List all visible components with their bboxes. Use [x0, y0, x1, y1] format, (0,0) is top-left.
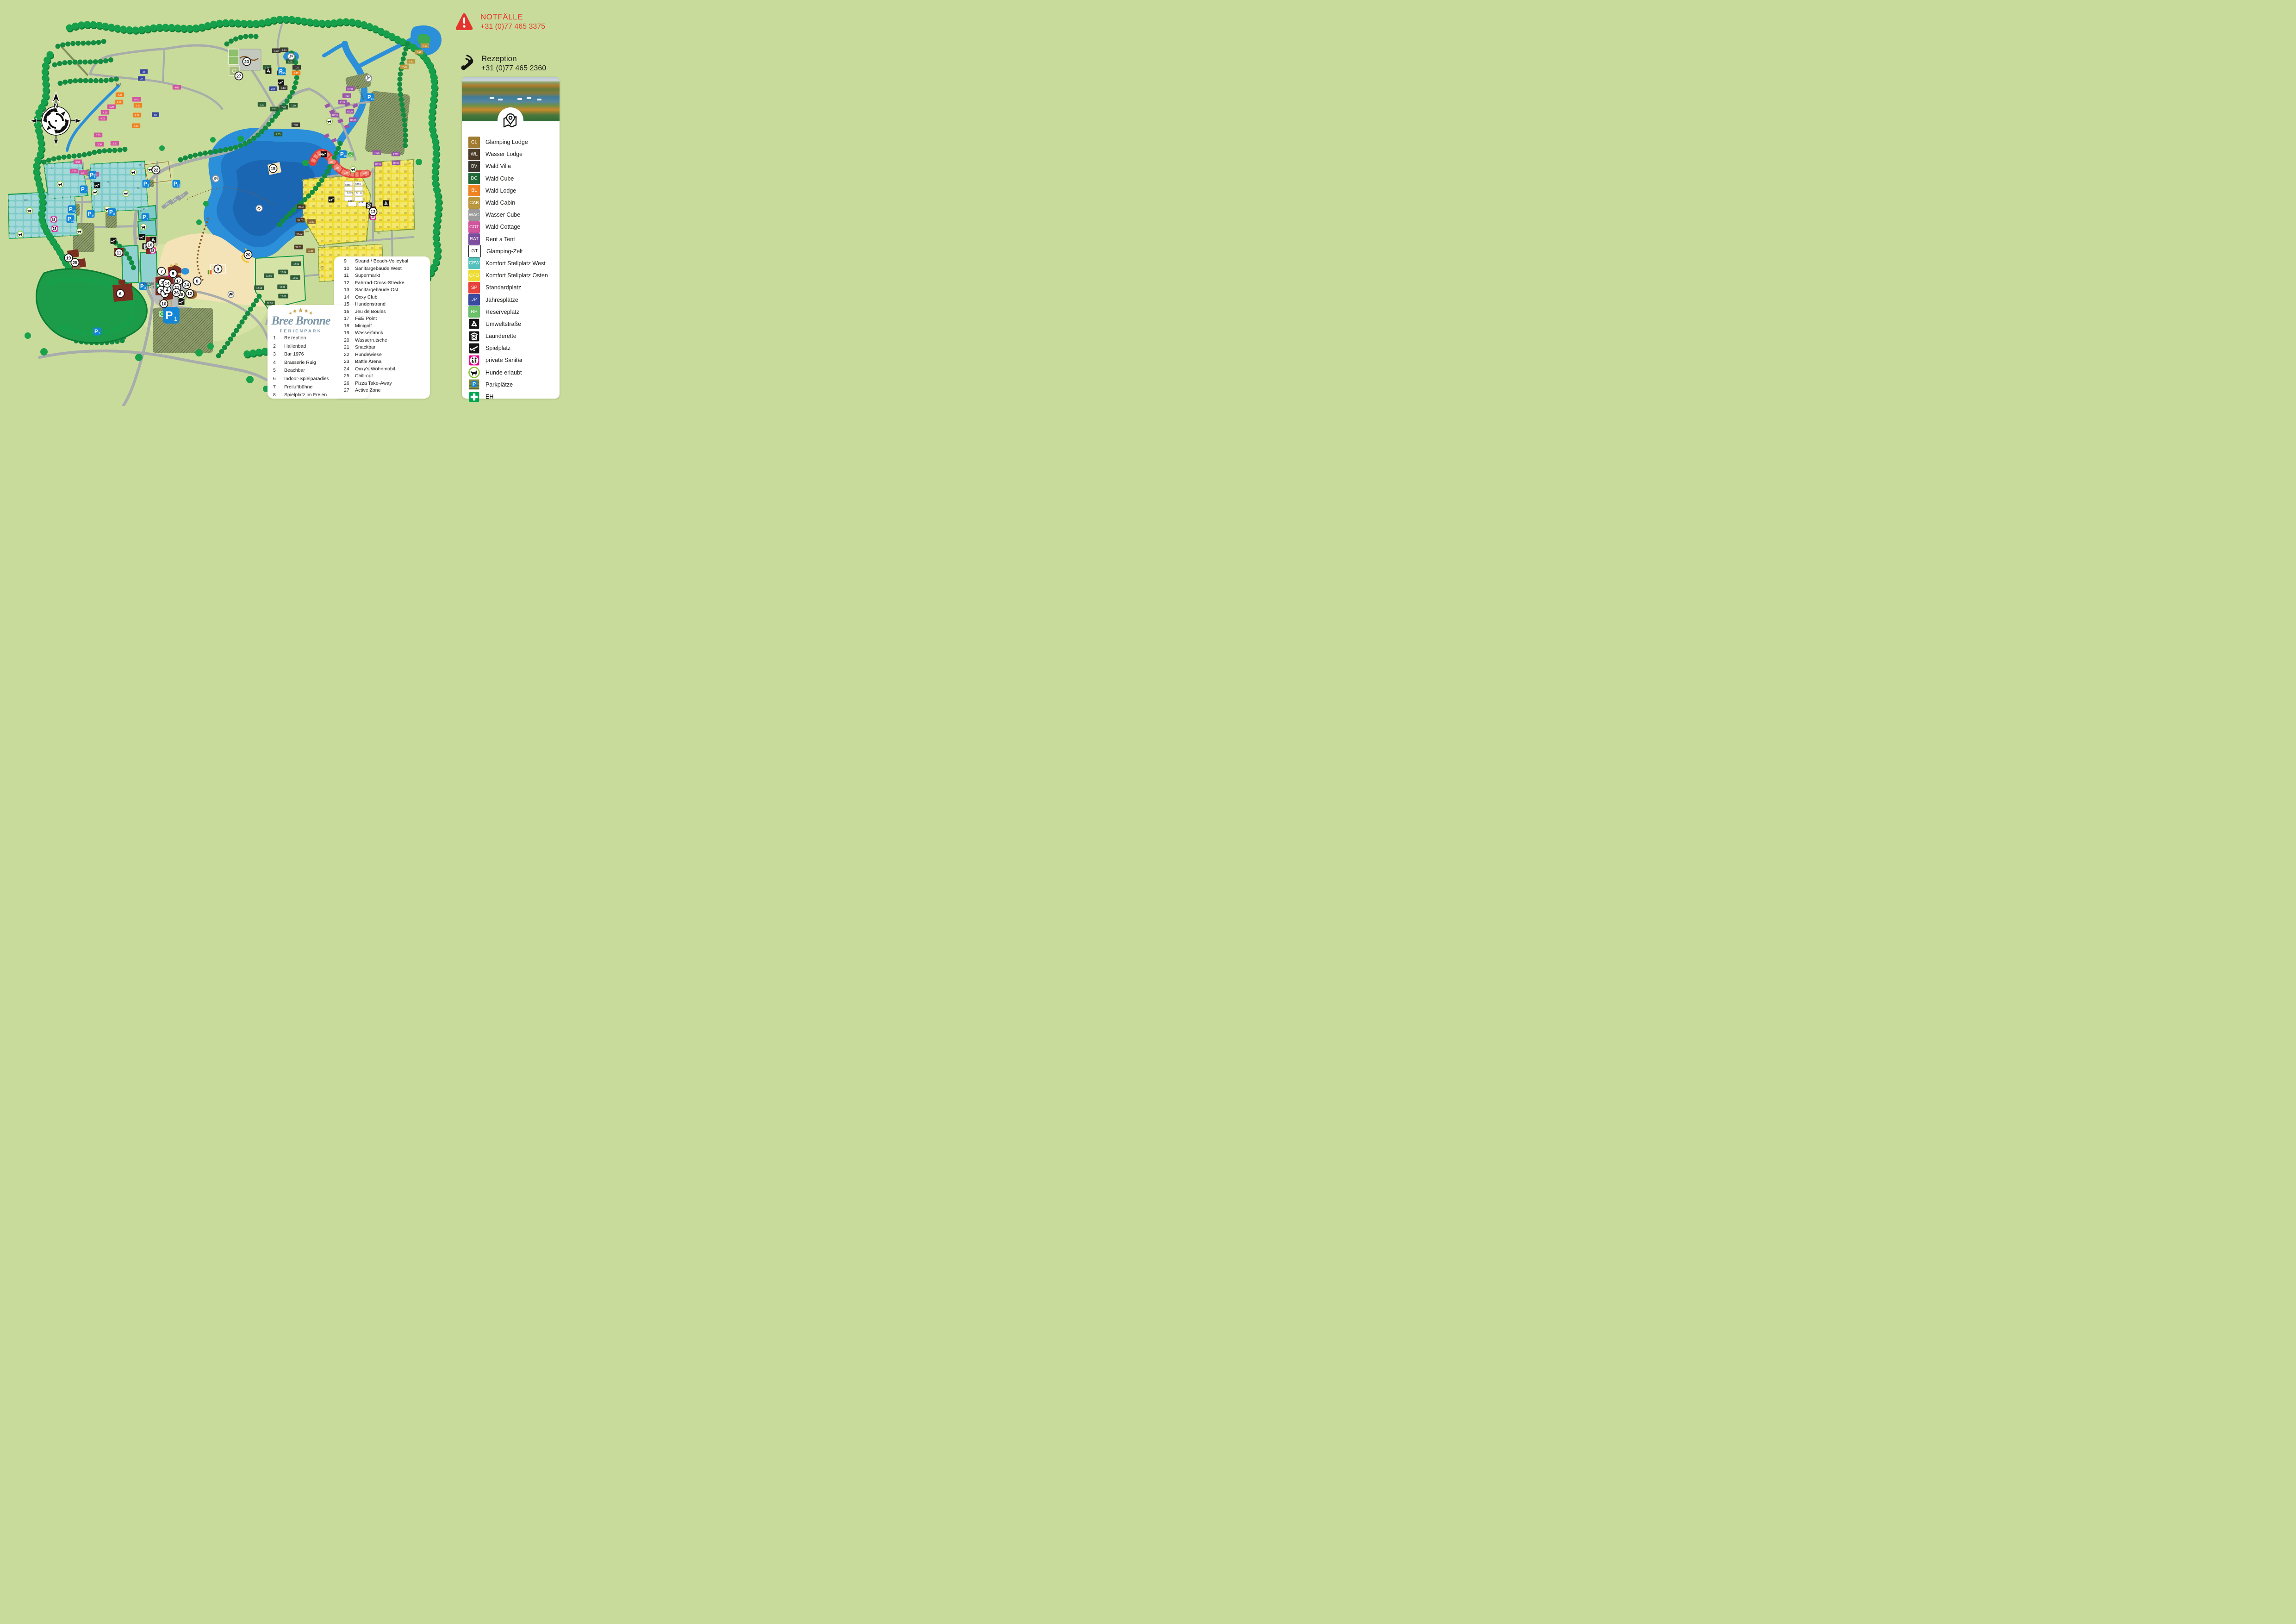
legend-label: Wasser Cube — [485, 212, 520, 218]
map-label-GL02: GL02 — [309, 221, 314, 224]
legend-swatch: BL — [468, 185, 480, 196]
legend-swatch: CAB — [468, 197, 480, 209]
map-label-7.40: 7.40 — [423, 45, 427, 48]
legend-card: GLGlamping LodgeWLWasser LodgeBVWald Vil… — [462, 77, 560, 399]
map-label-WL04: WL04 — [298, 206, 304, 209]
svg-text:4: 4 — [166, 287, 168, 293]
park-logo: ★★★★★ Bree Bronne FERIENPARK — [268, 306, 334, 334]
map-label-GT08: GT08 — [345, 184, 351, 187]
map-marker-10[interactable]: 10 — [146, 241, 154, 249]
map-marker-14[interactable]: 14 — [163, 279, 171, 287]
legend-swatch: COT — [468, 221, 480, 233]
map-pin-icon — [498, 107, 523, 133]
facility-number: 10 — [344, 266, 352, 271]
map-label-12.04: 12.04 — [280, 271, 286, 274]
facility-number: 17 — [344, 316, 352, 321]
legend-label: Parkplätze — [485, 381, 513, 388]
map-label-12.12: 12.12 — [256, 287, 262, 290]
map-label-7.43: 7.43 — [402, 66, 407, 69]
facility-number: 8 — [273, 392, 281, 398]
svg-text:25: 25 — [73, 260, 78, 265]
map-label-7.42: 7.42 — [409, 61, 413, 63]
dog-icon — [468, 367, 480, 378]
map-label-137: 137 — [11, 233, 15, 236]
parking-icon — [468, 379, 480, 390]
map-label-3.56: 3.56 — [72, 170, 76, 173]
legend-item-cpw: CPWKomfort Stellplatz West — [468, 257, 557, 269]
eh-icon — [468, 391, 480, 403]
map-label-RT20: RT20 — [347, 111, 353, 113]
map-label-GT11: GT11 — [356, 192, 362, 194]
map-label-RT08: RT08 — [348, 88, 353, 91]
park-map-page: P — [0, 0, 574, 406]
legend-label: Reserveplatz — [485, 309, 519, 315]
map-label-7.10: 7.10 — [291, 105, 296, 107]
map-label-7.05: 7.05 — [276, 133, 280, 136]
facility-number: 25 — [344, 373, 352, 379]
map-label-281: 281 — [407, 162, 411, 165]
map-label-59: 59 — [154, 114, 157, 117]
legend-item-gt: GTGlamping-Zelt — [468, 245, 557, 257]
svg-text:14: 14 — [165, 281, 170, 286]
map-label-ENTREE: ENTREE — [143, 283, 154, 286]
parking-p8[interactable]: P8 — [108, 208, 116, 216]
facility-row-8: 8Spielplatz im Freien — [273, 392, 329, 400]
facility-label: Sanitärgebäude West — [355, 266, 402, 271]
facility-label: Bar 1976 — [284, 351, 304, 357]
recycle-icon — [383, 200, 389, 206]
flag-icon — [208, 270, 212, 275]
facility-label: Battle Arena — [355, 359, 381, 364]
map-label-53: 53 — [140, 210, 143, 212]
facility-label: Hundenstrand — [355, 301, 386, 307]
map-label-4.41: 4.41 — [134, 99, 139, 101]
map-label-4.08: 4.08 — [174, 87, 179, 89]
legend-item-parking: Parkplätze — [468, 379, 557, 391]
svg-text:16: 16 — [371, 98, 374, 101]
dog-icon — [130, 169, 136, 175]
legend-item-gl: GLGlamping Lodge — [468, 136, 557, 148]
facility-number: 18 — [344, 323, 352, 329]
legend-label: Hunde erlaubt — [485, 369, 522, 376]
reception-phone: +31 (0)77 465 2360 — [481, 64, 546, 74]
svg-text:11: 11 — [71, 220, 74, 223]
reception-contact: Rezeption +31 (0)77 465 2360 — [456, 54, 546, 74]
facility-label: Sanitärgebäude Ost — [355, 287, 398, 293]
legend-label: Glamping Lodge — [485, 139, 528, 145]
facility-row-4: 4Brasserie Ruig — [273, 360, 329, 368]
svg-text:P: P — [109, 210, 113, 215]
svg-text:P: P — [81, 187, 85, 193]
facility-label: Snackbar — [355, 344, 375, 350]
map-label-7.07: 7.07 — [293, 124, 298, 127]
facility-number: 7 — [273, 384, 281, 390]
legend-item-dog: Hunde erlaubt — [468, 367, 557, 379]
facility-number: 23 — [344, 359, 352, 364]
facility-row-14: 14Oxxy Club — [344, 294, 408, 302]
map-label-N: N — [54, 102, 58, 109]
seesaw-icon — [329, 197, 335, 203]
map-label-35: 35 — [143, 71, 145, 74]
facility-number: 3 — [273, 351, 281, 357]
map-label-188: 188 — [305, 231, 309, 233]
facility-number: 13 — [344, 287, 352, 293]
emergency-phone: +31 (0)77 465 3375 — [480, 22, 545, 32]
seesaw-icon — [468, 343, 480, 354]
legend-swatch: WAC — [468, 209, 480, 221]
map-label-3.30: 3.30 — [112, 143, 117, 145]
parking-p9[interactable]: P9 — [87, 210, 95, 218]
map-label-RT25: RT25 — [374, 152, 380, 155]
svg-text:10: 10 — [72, 210, 75, 213]
parking-p13[interactable]: P13 — [339, 150, 347, 158]
map-label-RT26: RT26 — [375, 163, 381, 166]
legend-item-cot: COTWald Cottage — [468, 221, 557, 233]
facility-label: Supermarkt — [355, 273, 380, 278]
facility-label: Hundewiese — [355, 352, 382, 357]
dog-icon — [326, 118, 332, 124]
facility-number: 19 — [344, 330, 352, 336]
facility-row-9: 9Strand / Beach-Volleybal — [344, 258, 408, 266]
nofish-icon — [288, 53, 294, 60]
map-marker-12[interactable]: 12 — [186, 289, 193, 297]
svg-text:20: 20 — [246, 252, 251, 257]
map-marker-24[interactable]: 24 — [182, 281, 190, 288]
legend-item-eh: EH — [468, 391, 557, 403]
map-label-7.02: 7.02 — [281, 106, 286, 109]
facility-row-18: 18Minigolf — [344, 323, 408, 331]
map-label-3.57: 3.57 — [81, 172, 86, 175]
reception-title: Rezeption — [481, 54, 546, 64]
svg-text:19: 19 — [66, 256, 71, 261]
warning-icon — [454, 12, 474, 31]
wc-icon — [51, 217, 57, 223]
map-label-12.01: 12.01 — [293, 263, 299, 266]
map-label-3.08: 3.08 — [93, 174, 97, 176]
nofish-icon — [212, 175, 219, 182]
facility-label: Minigolf — [355, 323, 372, 329]
parking-p5[interactable]: P5 — [143, 180, 150, 188]
facility-row-5: 5Beachbar — [273, 368, 329, 376]
facility-row-20: 20Wasserrutsche — [344, 337, 408, 345]
facility-row-10: 10Sanitärgebäude West — [344, 266, 408, 273]
emergency-title: NOTFÄLLE — [480, 12, 545, 22]
map-label-408: 408 — [330, 161, 334, 164]
legend-swatch: GT — [468, 245, 481, 257]
map-marker-27[interactable]: 27 — [235, 72, 243, 80]
map-label-63: 63 — [138, 164, 141, 166]
legend-item-rat: RATRent a Tent — [468, 233, 557, 245]
map-marker-11[interactable]: 11 — [115, 249, 123, 256]
legend-swatch: CPW — [468, 257, 480, 269]
map-label-7.22: 7.22 — [274, 50, 279, 53]
legend-item-wl: WLWasser Lodge — [468, 148, 557, 160]
map-label-GT09: GT09 — [355, 183, 361, 186]
map-label-7.25: 7.25 — [288, 61, 292, 63]
facility-number: 1 — [273, 335, 281, 341]
legend-swatch: WL — [468, 149, 480, 160]
dog-icon — [350, 166, 356, 172]
map-label-3.36: 3.36 — [97, 144, 102, 146]
map-label-411: 411 — [319, 153, 323, 156]
parking-p12[interactable]: P12 — [173, 180, 180, 188]
legend-item-rp: RPReserveplatz — [468, 306, 557, 318]
map-label-4.33: 4.33 — [118, 94, 122, 97]
dog-icon — [26, 207, 32, 213]
svg-text:23: 23 — [244, 59, 249, 64]
map-label-7.01: 7.01 — [272, 108, 277, 111]
parking-p7[interactable]: P7 — [80, 186, 88, 194]
map-marker-22[interactable]: 22 — [152, 166, 160, 174]
parking-p1[interactable]: P1 — [163, 307, 180, 324]
map-label-239: 239 — [354, 179, 358, 181]
legend-label: Spielplatz — [485, 345, 510, 351]
facility-label: Freiluftbühne — [284, 384, 312, 390]
legend-label: EH — [485, 394, 493, 400]
map-label-RT02: RT02 — [393, 153, 398, 156]
parking-p4[interactable]: P4 — [142, 213, 149, 221]
map-label-GL01: GL01 — [308, 250, 313, 253]
map-label-320: 320 — [377, 232, 380, 235]
map-label-403: 403 — [344, 172, 348, 175]
facility-row-3: 3Bar 1976 — [273, 351, 329, 360]
seesaw-icon — [139, 234, 145, 240]
assembly-icon — [348, 151, 354, 157]
map-marker-26[interactable]: 26 — [172, 288, 180, 296]
map-label-RT22: RT22 — [350, 119, 356, 122]
nocar-icon — [228, 291, 234, 297]
legend-swatch: GL — [468, 137, 480, 148]
facility-row-16: 16Jeu de Boules — [344, 309, 408, 316]
dog-icon — [140, 224, 146, 230]
map-label-400: 400 — [363, 172, 367, 175]
facility-row-2: 2Hallenbad — [273, 344, 329, 352]
svg-text:13: 13 — [343, 155, 347, 158]
parking-p16[interactable]: P16 — [367, 94, 374, 101]
map-label-RT12: RT12 — [340, 101, 345, 104]
map-label-WL02: WL02 — [296, 233, 302, 236]
map-label-48: 48 — [107, 181, 110, 183]
map-label-7.41: 7.41 — [417, 51, 421, 54]
svg-text:5: 5 — [172, 271, 174, 276]
map-marker-13[interactable]: 13 — [369, 207, 377, 215]
facility-row-6: 6Indoor-Spielparadies — [273, 376, 329, 384]
facility-row-1: 1Rezeption — [273, 335, 329, 344]
map-marker-9[interactable]: 9 — [214, 265, 222, 273]
legend-item-bv: BVWald Villa — [468, 160, 557, 172]
facility-row-17: 17F&E Point — [344, 316, 408, 323]
facility-row-11: 11Supermarkt — [344, 273, 408, 280]
legend-swatch: JP — [468, 294, 480, 306]
facility-row-22: 22Hundewiese — [344, 352, 408, 359]
legend-list: GLGlamping LodgeWLWasser LodgeBVWald Vil… — [468, 136, 557, 403]
map-marker-7[interactable]: 7 — [157, 267, 165, 275]
legend-swatch: BC — [468, 173, 480, 184]
facility-row-12: 12Fahrrad-Cross-Strecke — [344, 280, 408, 287]
legend-item-sp: SPStandardplatz — [468, 281, 557, 294]
facility-number: 6 — [273, 376, 281, 381]
legend-item-wac: WACWasser Cube — [468, 209, 557, 221]
map-label-WL01: WL01 — [295, 246, 301, 249]
facility-row-15: 15Hundenstrand — [344, 301, 408, 309]
map-marker-5[interactable]: 5 — [169, 269, 177, 277]
map-label-7.27: 7.27 — [294, 67, 299, 69]
map-label-4.31: 4.31 — [117, 101, 121, 104]
facility-number: 14 — [344, 294, 352, 300]
map-marker-15[interactable]: 15 — [269, 164, 277, 172]
map-label-3.35: 3.35 — [96, 134, 100, 137]
swim-icon — [256, 205, 262, 212]
map-label-34: 34 — [140, 78, 143, 81]
facility-number: 27 — [344, 387, 352, 393]
facility-row-7: 7Freiluftbühne — [273, 384, 329, 393]
facility-label: Wasserfabrik — [355, 330, 383, 336]
facility-number: 22 — [344, 352, 352, 357]
map-label-234: 234 — [271, 88, 275, 91]
map-label-12.05: 12.05 — [266, 275, 272, 278]
facility-label: Beachbar — [284, 368, 305, 373]
map-marker-25[interactable]: 25 — [71, 258, 79, 266]
facility-number: 24 — [344, 366, 352, 372]
svg-text:15: 15 — [271, 166, 276, 171]
svg-text:10: 10 — [148, 243, 153, 248]
svg-text:24: 24 — [184, 282, 189, 287]
map-label-62: 62 — [140, 231, 143, 234]
legend-label: Standardplatz — [485, 284, 521, 291]
facility-label: Active Zone — [355, 387, 380, 393]
facility-number: 15 — [344, 301, 352, 307]
legend-label: Wasser Lodge — [485, 151, 523, 157]
svg-text:13: 13 — [371, 209, 376, 214]
dog-icon — [76, 228, 82, 234]
legend-label: Launderette — [485, 333, 516, 339]
svg-text:P: P — [165, 309, 173, 322]
map-label-12.06: 12.06 — [280, 286, 286, 289]
map-marker-16[interactable]: 16 — [160, 300, 168, 307]
legend-label: Jahresplätze — [485, 297, 518, 303]
parking-p2[interactable]: P2 — [93, 328, 101, 336]
facility-number: 12 — [344, 280, 352, 286]
seesaw-icon — [278, 80, 284, 86]
legend-item-cab: CABWald Cabin — [468, 197, 557, 209]
legend-label: Glamping-Zelt — [486, 248, 523, 255]
svg-text:16: 16 — [162, 301, 167, 306]
map-label-RT15: RT15 — [332, 114, 338, 117]
facility-label: F&E Point — [355, 316, 377, 321]
logo-title: Bree Bronne — [268, 315, 334, 327]
legend-label: Komfort Stellplatz West — [485, 260, 546, 267]
map-marker-23[interactable]: 23 — [243, 57, 250, 65]
facility-number: 16 — [344, 309, 352, 314]
svg-text:8: 8 — [196, 279, 198, 284]
logo-subtitle: FERIENPARK — [268, 329, 334, 334]
emergency-contact: NOTFÄLLE +31 (0)77 465 3375 — [454, 12, 545, 32]
facility-label: Hallenbad — [284, 344, 306, 349]
facility-row-13: 13Sanitärgebäude Ost — [344, 287, 408, 294]
laundry-icon — [468, 331, 480, 342]
map-label-4.29: 4.29 — [109, 106, 114, 109]
facility-label: Wasserrutsche — [355, 337, 387, 343]
facility-label: Jeu de Boules — [355, 309, 386, 314]
legend-label: Wald Lodge — [485, 187, 516, 194]
map-label-exit: exit — [116, 82, 122, 87]
legend-item-jp: JPJahresplätze — [468, 294, 557, 306]
legend-item-wc: private Sanitär — [468, 354, 557, 366]
facility-number: 2 — [273, 344, 281, 349]
facility-label: Oxxy's Wohnmobil — [355, 366, 395, 372]
legend-item-bl: BLWald Lodge — [468, 185, 557, 197]
map-label-4.27: 4.27 — [100, 118, 105, 120]
legend-swatch: RAT — [468, 233, 480, 245]
legend-label: Wald Cottage — [485, 224, 520, 230]
map-label-6.29: 6.29 — [260, 104, 264, 106]
legend-label: private Sanitär — [485, 357, 523, 363]
legend-label: Komfort Stellplatz Osten — [485, 272, 548, 279]
map-marker-8[interactable]: 8 — [193, 277, 201, 285]
facility-number: 5 — [273, 368, 281, 373]
seesaw-icon — [111, 238, 117, 244]
nofish-icon — [365, 75, 372, 81]
map-label-97: 97 — [51, 167, 54, 169]
parking-p10[interactable]: P10 — [68, 206, 76, 213]
facility-label: Oxxy Club — [355, 294, 377, 300]
map-marker-6[interactable]: 6 — [116, 289, 124, 297]
legend-item-bc: BCWald Cube — [468, 173, 557, 185]
dog-icon — [92, 189, 98, 195]
svg-text:22: 22 — [154, 168, 159, 173]
facility-number: 4 — [273, 360, 281, 365]
phone-icon — [456, 54, 475, 72]
facility-row-21: 21Snackbar — [344, 344, 408, 352]
facility-list-col2: 9Strand / Beach-Volleybal10Sanitärgebäud… — [344, 258, 408, 395]
legend-item-recycle: Umweltstraße — [468, 318, 557, 330]
map-label-52: 52 — [137, 187, 140, 189]
facility-number: 9 — [344, 258, 352, 264]
map-label-27: 27 — [143, 208, 145, 210]
facility-label: Indoor-Spielparadies — [284, 376, 329, 381]
facility-label: Strand / Beach-Volleybal — [355, 258, 408, 264]
legend-label: Wald Cabin — [485, 200, 515, 206]
facility-label: Fahrrad-Cross-Strecke — [355, 280, 404, 286]
map-label-RT10: RT10 — [344, 95, 349, 98]
legend-swatch: RP — [468, 306, 480, 318]
legend-swatch: SP — [468, 282, 480, 294]
map-label-6.35: 6.35 — [265, 67, 269, 69]
map-label-RT01: RT01 — [393, 162, 399, 165]
legend-swatch: BV — [468, 161, 480, 172]
map-label-7.24: 7.24 — [282, 49, 286, 52]
legend-label: Umweltstraße — [485, 321, 521, 327]
map-label-12.08: 12.08 — [280, 295, 286, 298]
facility-number: 11 — [344, 273, 352, 278]
parking-p11[interactable]: P11 — [67, 215, 75, 223]
legend-item-laundry: Launderette — [468, 330, 557, 342]
facility-label: Chill-out — [355, 373, 373, 379]
map-label-7.13: 7.13 — [281, 87, 286, 90]
map-label-4.32: 4.32 — [134, 125, 138, 128]
map-marker-20[interactable]: 20 — [244, 250, 252, 258]
wc-icon — [468, 355, 480, 366]
facility-label: Pizza Take-Away — [355, 381, 392, 386]
map-label-12.10: 12.10 — [267, 302, 273, 305]
map-label-4.34: 4.34 — [135, 114, 139, 117]
svg-text:P: P — [143, 215, 146, 220]
laundry-icon — [366, 203, 372, 209]
map-label-12.02: 12.02 — [292, 277, 299, 280]
dog-icon — [57, 181, 63, 187]
map-label-90: 90 — [93, 181, 95, 184]
map-label-240: 240 — [320, 266, 324, 268]
